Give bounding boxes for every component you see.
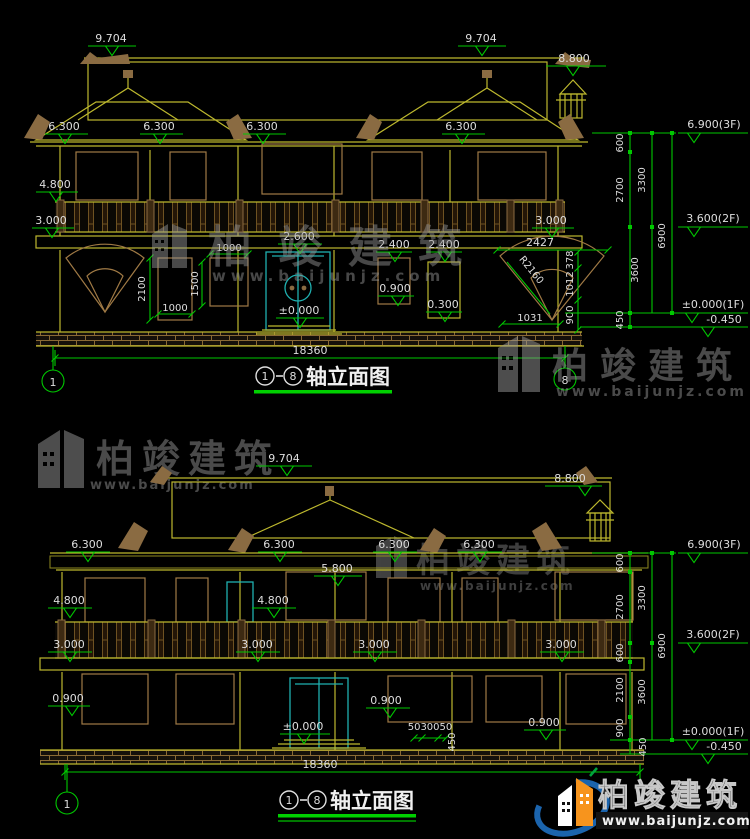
level-label: ±0.000: [283, 720, 324, 733]
top-elevation: 9.704 9.704 8.800 6.300 6.300 6.300 6.30…: [24, 32, 748, 394]
watermark-brand: 柏竣建筑: [552, 346, 744, 387]
roof-finial: [123, 70, 133, 78]
brick-base: [40, 750, 644, 764]
dim-chain-vertical: 378 1012 900: [565, 249, 582, 334]
dim-label: 900: [615, 718, 626, 737]
level-marker: 6.300: [258, 538, 302, 562]
dim-label: 450: [615, 310, 626, 329]
lattice-panel: [262, 144, 342, 194]
level-label: ±0.000: [279, 304, 320, 317]
lattice-window: [372, 152, 422, 200]
level-marker: 0.900: [366, 694, 410, 718]
level-label: 6.300: [143, 120, 175, 133]
axis-number: 1: [50, 376, 57, 389]
level-label: 6.300: [263, 538, 295, 551]
level-label: ±0.000(1F): [682, 298, 745, 311]
level-marker: ±0.000: [276, 304, 324, 328]
level-label: 9.704: [465, 32, 497, 45]
lattice-window: [176, 674, 234, 724]
level-label: 4.800: [39, 178, 71, 191]
level-label: 9.704: [268, 452, 300, 465]
level-marker: 6.900(3F): [678, 538, 748, 563]
awning-roof: [40, 658, 644, 670]
level-label: 8.800: [558, 52, 590, 65]
lattice-window: [286, 572, 366, 620]
title-underline-2: [278, 820, 416, 822]
eave-curl-icon: [228, 528, 254, 553]
dim-label: 2700: [615, 177, 626, 202]
bottom-title: 1 8 轴立面图: [278, 789, 416, 822]
dim-label: 6900: [657, 633, 668, 658]
main-door: [290, 678, 348, 748]
level-label: 8.800: [554, 472, 586, 485]
level-label: 6.900(3F): [687, 538, 740, 551]
level-marker: 3.600(2F): [678, 212, 748, 237]
title-axis-end: 8: [290, 370, 297, 383]
level-marker: -0.450: [694, 740, 748, 764]
level-label: -0.450: [706, 313, 741, 326]
level-label: 6.300: [378, 538, 410, 551]
dim-label: 2100: [615, 677, 626, 702]
title-underline: [278, 814, 416, 818]
dim-label: 600: [615, 643, 626, 662]
level-marker: 3.000: [532, 214, 574, 238]
dim-label: 1000: [162, 303, 187, 314]
dim-label: 378: [565, 250, 576, 269]
fan-window-left: [66, 244, 144, 312]
dim-label: 1012: [565, 271, 576, 296]
dim-label: 3300: [637, 167, 648, 192]
watermark-brand: 柏竣建筑: [96, 437, 280, 481]
eave-curl-icon: [80, 52, 130, 64]
level-marker: 4.800: [252, 594, 296, 618]
dim-horizontal: 2427: [494, 236, 612, 254]
dim-label: 3600: [637, 679, 648, 704]
eave-curl-icon: [118, 522, 148, 551]
dim-label: 5030050: [408, 722, 453, 733]
level-label: 3.000: [53, 638, 85, 651]
level-label: 0.900: [52, 692, 84, 705]
level-label: 6.900(3F): [687, 118, 740, 131]
bottom-elevation: 9.704 8.800 6.300 6.300 6.300 6.300 5.80…: [40, 452, 748, 822]
dim-label: 6900: [657, 223, 668, 248]
dim-label: 2700: [615, 594, 626, 619]
brand-logo: 柏竣建筑 www.baijunjz.com: [530, 768, 750, 839]
watermark-url: www.baijunjz.com: [420, 579, 575, 593]
level-marker: 9.704: [458, 32, 506, 56]
lattice-window: [85, 578, 145, 622]
level-label: 6.300: [445, 120, 477, 133]
level-label: -0.450: [706, 740, 741, 753]
dim-label: 450: [638, 737, 649, 756]
title-axis-start: 1: [286, 794, 293, 807]
title-underline: [254, 390, 392, 394]
level-marker: 5.800: [314, 562, 362, 586]
level-marker: 8.800: [545, 472, 602, 496]
bottom-dimensions: 9.704 8.800 6.300 6.300 6.300 6.300 5.80…: [48, 452, 644, 780]
level-marker: 9.704: [88, 32, 136, 56]
dim-label: 900: [565, 305, 576, 324]
level-marker: 6.300: [243, 120, 286, 144]
level-label: 3.000: [358, 638, 390, 651]
level-label: 3.000: [241, 638, 273, 651]
watermark: 柏竣建筑 www.baijunjz.com: [498, 336, 747, 400]
level-label: 4.800: [257, 594, 289, 607]
level-marker: 6.900(3F): [678, 118, 748, 143]
watermark-url: www.baijunjz.com: [556, 384, 747, 400]
level-label: 6.300: [48, 120, 80, 133]
top-title: 1 8 轴立面图: [254, 365, 392, 394]
watermark-brand: 柏竣建筑: [208, 222, 488, 273]
dim-label: 450: [447, 732, 458, 751]
level-marker: 0.900: [378, 282, 414, 306]
level-label: 3.600(2F): [686, 212, 739, 225]
level-label: 5.800: [321, 562, 353, 575]
title-axis-start: 1: [262, 370, 269, 383]
dim-label: 1031: [517, 313, 542, 324]
lattice-window: [478, 152, 546, 200]
watermark-url: www.baijunjz.com: [212, 267, 445, 285]
dim-label: 18360: [303, 758, 338, 771]
eave-curl-icon: [24, 114, 50, 140]
level-label: 4.800: [53, 594, 85, 607]
level-label: 6.300: [246, 120, 278, 133]
level-label: 0.900: [370, 694, 402, 707]
dim-label: 1500: [190, 271, 201, 296]
top-dimensions: 9.704 9.704 8.800 6.300 6.300 6.300 6.30…: [32, 32, 612, 366]
top-right-dimension-column: 600 2700 3300 3600 6900 450 6.900(3F) 3.…: [565, 118, 748, 337]
roof-gable-right: [437, 76, 537, 120]
drawing-title: 轴立面图: [330, 789, 414, 813]
level-label: ±0.000(1F): [682, 725, 745, 738]
level-marker: 0.900: [48, 692, 90, 716]
total-dimension: 18360: [52, 344, 569, 366]
axis-number: 1: [64, 798, 71, 811]
blueprint-canvas: 9.704 9.704 8.800 6.300 6.300 6.300 6.30…: [0, 0, 750, 839]
level-marker: 6.300: [66, 538, 110, 562]
level-label: 0.900: [528, 716, 560, 729]
eave-curl-icon: [356, 114, 382, 140]
title-axis-end: 8: [314, 794, 321, 807]
level-marker: 3.600(2F): [678, 628, 748, 653]
dim-label: 600: [615, 553, 626, 572]
dim-label: 2100: [137, 276, 148, 301]
roof-finial: [482, 70, 492, 78]
level-label: 6.300: [71, 538, 103, 551]
lattice-window: [76, 152, 138, 200]
level-marker: 8.800: [546, 52, 606, 76]
level-label: 9.704: [95, 32, 127, 45]
level-label: 6.300: [463, 538, 495, 551]
level-marker: 4.800: [36, 178, 78, 202]
dim-label: 18360: [293, 344, 328, 357]
level-label: 3.000: [545, 638, 577, 651]
cad-blueprint-sheet: 9.704 9.704 8.800 6.300 6.300 6.300 6.30…: [0, 0, 750, 839]
lattice-window: [82, 674, 148, 724]
steps-dimension: 5030050 450: [408, 722, 458, 752]
roof-gable-left: [78, 76, 178, 120]
dim-label: 600: [615, 133, 626, 152]
level-label: 0.300: [427, 298, 459, 311]
drawing-title: 轴立面图: [306, 365, 390, 389]
turret: [556, 80, 586, 118]
dim-horizontal: 1000: [155, 303, 196, 318]
bottom-right-dimension-column: 600 2700 3300 600 2100 900 450 3600 6900…: [592, 538, 748, 764]
roof-finial: [325, 486, 334, 496]
dim-label: 3300: [637, 585, 648, 610]
lattice-window: [170, 152, 206, 200]
dim-label: 2427: [526, 236, 554, 249]
roof-gable: [246, 490, 414, 538]
top-roof: [24, 52, 591, 146]
logo-url-text: www.baijunjz.com: [602, 814, 750, 829]
level-label: 3.000: [35, 214, 67, 227]
level-marker: -0.450: [694, 313, 748, 337]
level-label: 3.600(2F): [686, 628, 739, 641]
logo-brand-text: 柏竣建筑: [598, 778, 742, 814]
level-label: 3.000: [535, 214, 567, 227]
lattice-window: [176, 578, 208, 622]
dim-label: 3600: [630, 257, 641, 282]
